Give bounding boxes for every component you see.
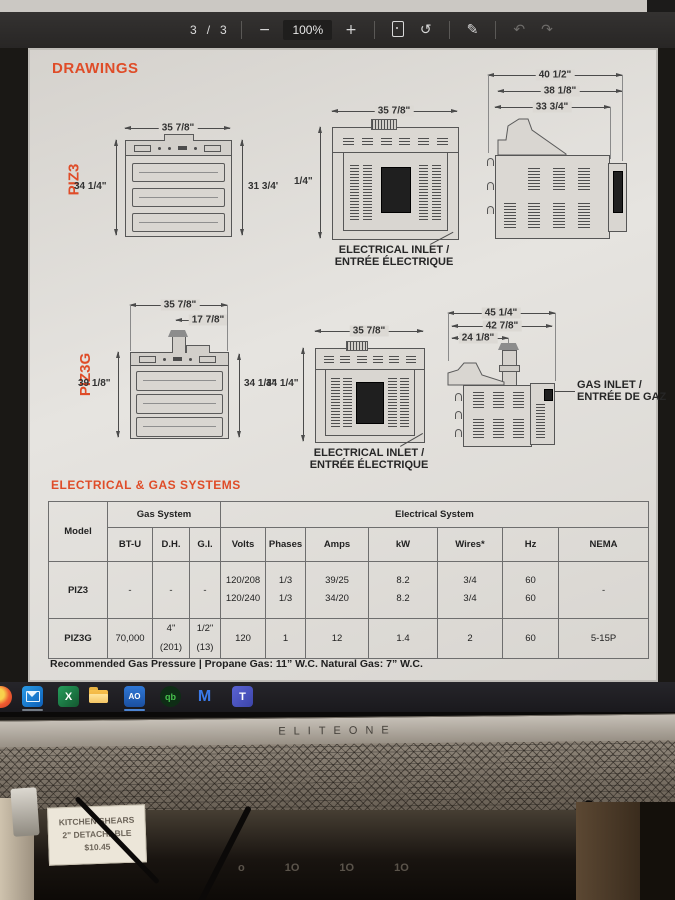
extension-line [448, 313, 449, 361]
zoom-in-button[interactable]: + [342, 21, 360, 39]
dim-label: 38 1/8" [541, 86, 580, 97]
piz3-side-view [495, 155, 610, 239]
piz3-front-view [125, 140, 232, 237]
vent-group [553, 168, 565, 190]
back-top-vents [316, 349, 424, 370]
redo-button[interactable]: ↷ [538, 21, 556, 39]
side-rear-panel [530, 383, 555, 445]
dimension-line [242, 140, 243, 235]
undo-button[interactable]: ↶ [510, 21, 528, 39]
excel-icon[interactable]: X [58, 686, 79, 707]
wall-top-strip [0, 0, 675, 12]
cell-nema: - [559, 562, 649, 619]
file-explorer-icon[interactable] [88, 686, 109, 707]
dark-corner [640, 802, 675, 900]
page-number-separator: / [207, 23, 210, 37]
fit-page-button[interactable] [389, 19, 407, 42]
pointer-line [554, 391, 575, 392]
pdf-toolbar: 3 / 3 − 100% + ↺ ✎ ↶ ↷ [0, 12, 675, 48]
electrical-inlet-caption: ENTRÉE ÉLECTRIQUE [335, 256, 454, 268]
desk-area: KITCHEN SHEARS 2" DETACHABLE $10.45 o 1O… [0, 810, 675, 900]
side-hook [455, 429, 462, 437]
cell-model: PIZ3G [49, 619, 108, 659]
back-top-vents [333, 128, 458, 153]
vent-column [419, 163, 428, 220]
rear-slot [613, 171, 623, 213]
cell-kw: 1.4 [369, 619, 438, 659]
cell-volts: 120/208120/240 [221, 562, 266, 619]
vent-group [493, 392, 504, 408]
page-number-current[interactable]: 3 [190, 23, 197, 37]
piz3g-side-hood [447, 360, 505, 386]
dim-label: 45 1/4" [482, 308, 521, 319]
oven-deck [136, 394, 223, 414]
oven-deck [132, 213, 225, 232]
dim-label: 35 7/8" [159, 123, 198, 134]
dim-label: 33 3/4" [533, 102, 572, 113]
vent-column [536, 402, 545, 438]
cell-dh: - [153, 562, 190, 619]
dimension-line [303, 348, 304, 441]
vent-column [400, 378, 409, 427]
side-rear-panel [608, 163, 627, 232]
dimension-line [116, 140, 117, 235]
oven-deck [132, 163, 225, 182]
pdf-page: DRAWINGS PIZ3 35 7/8" 34 1/4" 31 3/4' [28, 48, 658, 682]
cell-model: PIZ3 [49, 562, 108, 619]
col-header: kW [369, 528, 438, 562]
vent-group [504, 202, 516, 228]
dimension-line [320, 127, 321, 238]
dim-label: 31 3/4' [248, 181, 278, 192]
dimension-line [239, 354, 240, 437]
cell-hz: 6060 [503, 562, 559, 619]
vent-group [473, 418, 484, 438]
electrical-inlet-caption: ENTRÉE ÉLECTRIQUE [310, 459, 429, 471]
cell-phases: 1/31/3 [266, 562, 306, 619]
dim-label: 35 7/8" [350, 326, 389, 337]
extension-line [610, 107, 611, 159]
vent-group [578, 202, 590, 228]
group-header-gas: Gas System [108, 502, 221, 528]
cell-dh: 4"(201) [153, 619, 190, 659]
back-body [343, 152, 448, 231]
specs-section-title: ELECTRICAL & GAS SYSTEMS [51, 478, 241, 492]
toolbar-divider [374, 21, 375, 39]
control-panel [126, 141, 231, 156]
annotate-button[interactable]: ✎ [464, 21, 482, 39]
extension-line [130, 305, 131, 351]
gas-inlet-callout: GAS INLET / [577, 379, 642, 391]
flue-cap [168, 330, 188, 337]
fit-page-icon [392, 21, 404, 37]
vent-column [350, 163, 359, 220]
cell-btu: - [108, 562, 153, 619]
vent-column [432, 163, 441, 220]
electrical-box [381, 167, 411, 213]
oven-deck [132, 188, 225, 207]
active-app-indicator [22, 709, 43, 711]
control-panel [131, 353, 228, 366]
browser-icon[interactable] [0, 686, 12, 708]
dim-label: 35 7/8" [375, 106, 414, 117]
extension-line [555, 313, 556, 381]
toolbar-divider [449, 21, 450, 39]
cell-phases: 1 [266, 619, 306, 659]
vent-group [528, 168, 540, 190]
toolbar-divider [495, 21, 496, 39]
col-header-model: Model [49, 502, 108, 562]
dim-label: 24 1/8" [459, 333, 498, 344]
vent-group [513, 418, 524, 438]
cell-volts: 120 [221, 619, 266, 659]
windows-taskbar: X AO qb M T [0, 682, 675, 712]
dim-label: 1/4" [294, 176, 313, 187]
table-row-piz3: PIZ3 - - - 120/208120/240 1/31/3 39/2534… [49, 562, 649, 619]
vent-group [513, 392, 524, 408]
spec-table: Model Gas System Electrical System BT-U … [48, 501, 649, 659]
dim-label: 42 7/8" [483, 321, 522, 332]
m-app-icon[interactable]: M [194, 686, 215, 707]
cable [193, 805, 252, 900]
piz3g-back-view [315, 348, 425, 443]
metal-clip [10, 787, 39, 837]
piz3-back-view [332, 127, 459, 240]
dimension-line [118, 352, 119, 437]
cell-wires: 2 [438, 619, 503, 659]
cell-btu: 70,000 [108, 619, 153, 659]
side-hook [455, 411, 462, 419]
cell-wires: 3/43/4 [438, 562, 503, 619]
vent-group [473, 392, 484, 408]
col-header: G.I. [190, 528, 221, 562]
zoom-level[interactable]: 100% [283, 20, 332, 40]
vent-column [388, 378, 397, 427]
dim-label: 35 7/8" [161, 300, 200, 311]
electrical-inlet-caption: ELECTRICAL INLET / [339, 244, 449, 256]
electrical-box [356, 382, 384, 424]
back-body [325, 369, 415, 436]
rotate-button[interactable]: ↺ [417, 21, 435, 39]
extension-line [227, 305, 228, 351]
vent-column [331, 378, 340, 427]
vent-group [578, 168, 590, 190]
piz3g-front-view [130, 352, 229, 439]
cell-amps: 39/2534/20 [306, 562, 369, 619]
oven-deck [136, 371, 223, 391]
faint-reflections: o 1O 1O 1O [238, 862, 409, 874]
oven-deck [136, 417, 223, 437]
col-header: BT-U [108, 528, 153, 562]
col-header: Hz [503, 528, 559, 562]
electrical-inlet-caption: ELECTRICAL INLET / [314, 447, 424, 459]
flue-cap [498, 343, 519, 350]
side-hook [455, 393, 462, 401]
col-header: D.H. [153, 528, 190, 562]
outlook-icon[interactable] [22, 686, 43, 707]
dim-label: 17 7/8" [189, 315, 228, 326]
col-header: Amps [306, 528, 369, 562]
vent-group [553, 202, 565, 228]
gas-inlet-callout: ENTRÉE DE GAZ [577, 391, 666, 403]
dim-label: 34 1/4" [74, 181, 107, 192]
piz3g-side-view [463, 385, 532, 447]
monitor-brand: ELITEONE [278, 724, 397, 737]
photo-of-monitor: 3 / 3 − 100% + ↺ ✎ ↶ ↷ DRAWINGS PIZ3 [0, 0, 675, 900]
dim-label: 39 1/8" [78, 378, 111, 389]
side-hook [487, 158, 494, 166]
quickbooks-icon[interactable]: qb [160, 686, 181, 707]
extension-line [488, 75, 489, 153]
group-header-electrical: Electrical System [221, 502, 649, 528]
vent-group [493, 418, 504, 438]
page-number-total: 3 [220, 23, 227, 37]
cell-kw: 8.28.2 [369, 562, 438, 619]
col-header: Phases [266, 528, 306, 562]
extension-line [622, 75, 623, 161]
piz3g-model-label: PIZ3G [77, 353, 94, 396]
vent-column [343, 378, 352, 427]
side-hook [487, 206, 494, 214]
cell-amps: 12 [306, 619, 369, 659]
cell-gi: 1/2"(13) [190, 619, 221, 659]
photo-corner [647, 0, 675, 12]
dim-label: 34 1/4" [266, 378, 299, 389]
gas-inlet-fitting [544, 389, 553, 401]
table-row-piz3g: PIZ3G 70,000 4"(201) 1/2"(13) 120 1 12 1… [49, 619, 649, 659]
dim-label: 40 1/2" [536, 70, 575, 81]
vent-column [363, 163, 372, 220]
piz3-side-hood [497, 118, 567, 156]
cell-gi: - [190, 562, 221, 619]
toolbar-divider [241, 21, 242, 39]
col-header: Volts [221, 528, 266, 562]
gas-pressure-footnote: Recommended Gas Pressure | Propane Gas: … [50, 658, 423, 670]
cell-hz: 60 [503, 619, 559, 659]
teams-icon[interactable]: T [232, 686, 253, 707]
drawings-section-title: DRAWINGS [52, 60, 139, 77]
col-header: Wires* [438, 528, 503, 562]
vent-group [528, 202, 540, 228]
cell-nema: 5-15P [559, 619, 649, 659]
ao-app-icon[interactable]: AO [124, 686, 145, 707]
folder-front [89, 694, 108, 703]
zoom-out-button[interactable]: − [256, 21, 274, 39]
side-hook [487, 182, 494, 190]
cardboard-box [576, 802, 640, 900]
active-app-indicator [124, 709, 145, 711]
envelope-icon [26, 691, 40, 702]
col-header: NEMA [559, 528, 649, 562]
